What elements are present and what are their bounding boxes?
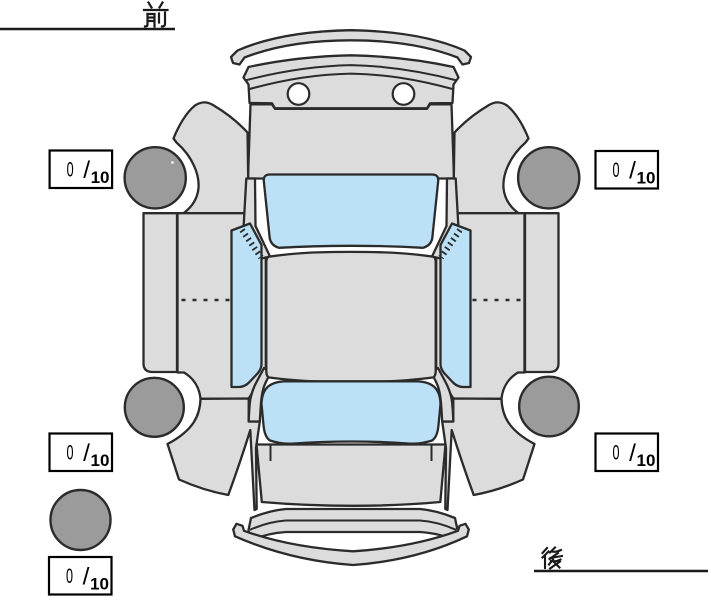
svg-text:/: / — [629, 440, 636, 467]
svg-text:/: / — [629, 158, 636, 185]
svg-text:/: / — [83, 440, 90, 467]
svg-text:0: 0 — [66, 564, 73, 588]
svg-text:10: 10 — [637, 451, 656, 470]
svg-text:10: 10 — [90, 575, 109, 594]
svg-text:/: / — [83, 157, 90, 184]
svg-text:0: 0 — [67, 157, 74, 181]
svg-text:10: 10 — [91, 168, 110, 187]
svg-text:10: 10 — [637, 169, 656, 188]
svg-text:/: / — [83, 564, 90, 591]
svg-text:0: 0 — [612, 440, 619, 464]
svg-text:0: 0 — [66, 440, 73, 464]
svg-text:0: 0 — [612, 158, 619, 182]
svg-text:10: 10 — [91, 451, 110, 470]
